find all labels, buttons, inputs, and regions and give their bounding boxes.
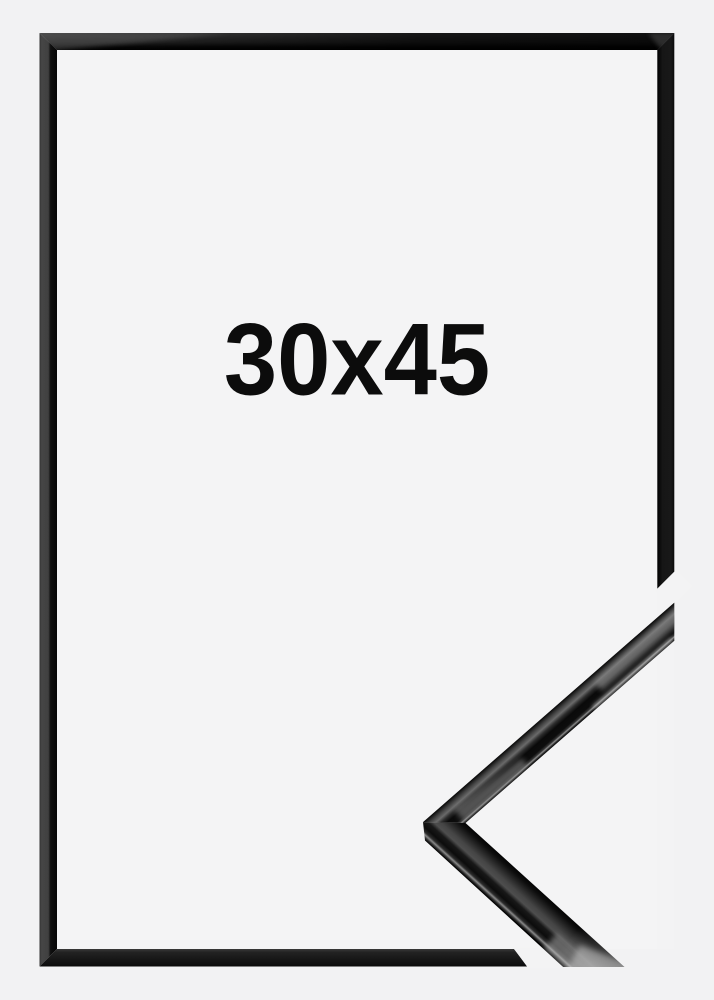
svg-text:30x45: 30x45 xyxy=(224,302,490,416)
